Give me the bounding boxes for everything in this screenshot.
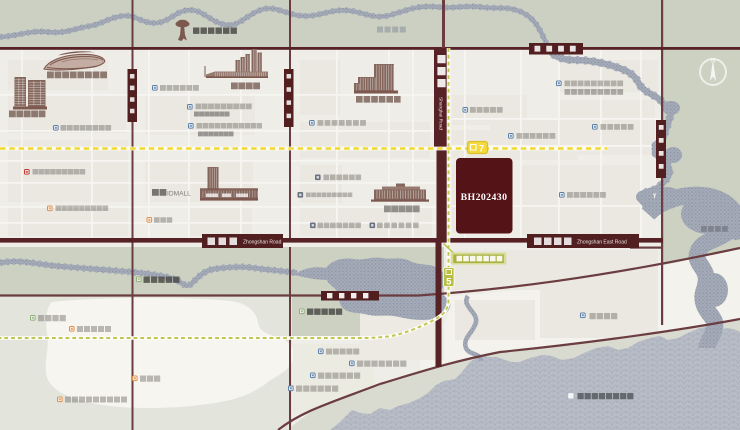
svg-text:5: 5 [446,277,452,288]
svg-text:7: 7 [479,144,484,154]
svg-text:N: N [711,59,715,65]
svg-text:Shanghai Road: Shanghai Road [438,97,444,130]
svg-text:Zhongshan Road: Zhongshan Road [243,240,282,246]
svg-text:IDMALL: IDMALL [167,190,191,197]
svg-text:BH202430: BH202430 [461,192,508,203]
svg-text:Zhongshan East Road: Zhongshan East Road [577,240,627,246]
